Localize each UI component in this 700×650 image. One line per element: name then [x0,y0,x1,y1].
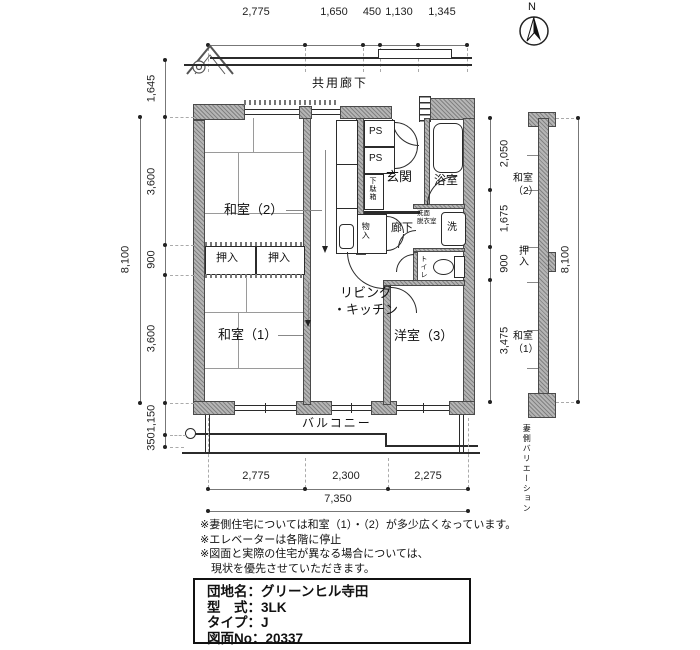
door-arc [395,146,418,169]
balcony-divider [205,415,206,452]
variation-room-washitsu2: 和室（2） [513,172,539,198]
toilet-icon [433,259,454,275]
tick-dot [576,116,580,120]
kitchen-counter [336,164,358,210]
note-line-1: ※妻側住宅については和室（1）・（2）が多少広くなっています。 [200,518,516,533]
tick-dot [163,243,167,247]
tatami-line [205,368,303,369]
dim-bottom-2: 2,300 [316,470,376,483]
dim-variation-3: 900 [499,242,512,286]
tick-dot [386,487,390,491]
info-drawing-no: 図面No：20337 [207,631,469,647]
tick-dot [361,43,365,47]
extension-line [170,447,184,448]
room-label-living-2: ・キッチン [333,303,398,318]
variation-tick [527,155,538,156]
info-type: 型 式：3LK [207,600,469,616]
extension-line [556,402,574,403]
tick-dot [163,433,167,437]
balcony-rail [386,445,478,447]
tick-dot [138,115,142,119]
room-label-living-1: リビング [340,286,392,301]
tick-dot [488,245,492,249]
room-label-toire: トイレ [419,255,427,279]
dim-left-3: 900 [146,240,159,280]
room-label-oshiire-2: 押入 [268,252,290,265]
dim-left-1: 1,645 [146,69,159,109]
tick-dot [488,400,492,404]
extension-line [170,245,194,246]
room-label-oshiire-1: 押入 [216,252,238,265]
kitchen-sink-icon [339,224,354,249]
living-door-arc [347,252,384,289]
wall-top-right-pillar [430,98,475,120]
room-label-genkan: 玄関 [386,170,412,185]
variation-room1-line1: 和室 [513,331,533,342]
variation-room2-line1: 和室 [513,173,533,184]
room-label-bath: 浴室 [434,174,458,188]
bathtub-icon [433,123,463,173]
wall-bottom-pillar [193,401,235,415]
variation-tick [527,282,538,283]
tick-dot [303,487,307,491]
wall-youshitsu-top [383,280,465,286]
extension-line [208,418,209,488]
dimension-line-bottom [208,489,468,490]
arrow-down-icon [305,320,311,327]
window-top-1 [245,109,299,115]
closet-hatch-bottom [205,274,303,278]
window-mullion [265,403,266,413]
info-danchi-name: 団地名：グリーンヒル寺田 [207,584,469,600]
dim-bottom-3: 2,275 [398,470,458,483]
toilet-tank-icon [454,256,465,278]
tatami-line [205,312,303,313]
dim-bottom-1: 2,775 [226,470,286,483]
tick-dot [416,43,420,47]
tick-dot [465,43,469,47]
dim-bottom-overall: 7,350 [308,493,368,506]
room-label-youshitsu3: 洋室（3） [394,329,453,344]
variation-room1-line2: （1） [513,344,539,355]
extension-line [305,48,306,72]
tick-dot [206,509,210,513]
balcony-divider [459,415,460,452]
dim-variation-1: 2,050 [499,132,512,176]
tick-dot [466,509,470,513]
variation-tick [527,247,538,248]
variation-tick [527,368,538,369]
extension-line [170,435,186,436]
dimension-line-bottom-overall [208,511,468,512]
extension-line [305,458,306,488]
window-top-2 [312,109,340,115]
balcony-outer-line [182,452,480,454]
room-label-sen: 洗 [447,222,457,234]
tick-dot [303,43,307,47]
arrow-down-icon [322,246,328,253]
tick-dot [163,58,167,62]
corridor-label: 共用廊下 [312,77,368,91]
room-label-rouka: 廊下 [391,222,413,235]
balcony-divider [209,415,210,452]
tick-dot [488,188,492,192]
room-label-getabako: 下駄箱 [368,177,376,201]
extension-line [388,458,389,488]
compass-icon [517,14,551,48]
variation-room-washitsu1: 和室（1） [513,330,539,356]
senmen-line2: 脱衣室 [417,218,437,225]
tick-dot [163,401,167,405]
room-label-monoire: 物入 [361,222,370,240]
dimension-line-top [208,45,467,46]
dim-left-4: 3,600 [146,319,159,359]
variation-caption: 妻側バリエーション [522,424,531,514]
wall-top-mid [340,106,392,119]
extension-line [468,418,469,488]
tick-dot [488,116,492,120]
corridor-edge-line [184,64,472,66]
dim-variation-2: 1,675 [499,197,512,241]
extension-line [363,48,364,72]
senmen-line1: 洗面 [417,210,430,217]
balcony-label: バルコニー [302,417,372,431]
kitchen-counter [336,120,358,166]
tick-dot [163,115,167,119]
wall-bottom-pillar [449,401,475,415]
wall-top-left-pillar [193,104,245,120]
tick-dot [466,487,470,491]
wall-senmen-toilet [413,248,465,252]
compass-north-label: N [528,1,536,14]
dim-left-6: 350 [146,422,159,462]
extension-line [170,403,194,404]
info-plan-type: タイプ：J [207,615,469,631]
tatami-line [246,277,247,312]
tick-dot [576,400,580,404]
wall-bottom-pillar [296,401,332,415]
drain-icon [185,428,196,439]
tatami-line [253,118,254,152]
corridor-slab [378,49,452,59]
dim-variation-overall: 8,100 [560,238,573,282]
variation-room2-line2: （2） [513,186,539,197]
room-label-washitsu2: 和室（2） [224,203,283,218]
notes-block: ※妻側住宅については和室（1）・（2）が多少広くなっています。 ※エレベーターは… [200,518,516,576]
dimension-line-variation-overall [578,118,579,402]
leader-line [286,210,322,211]
window-mullion [351,403,352,413]
room-label-ps1: PS [369,126,382,138]
tick-dot [138,401,142,405]
dimension-line-left-overall [140,117,141,403]
dim-top-1: 2,775 [226,6,286,19]
extension-line [170,275,194,276]
dim-variation-4: 3,475 [499,319,512,363]
balcony-rail [190,433,386,435]
tick-dot [206,487,210,491]
window-hatch [244,100,336,105]
tick-dot [163,445,167,449]
balcony-divider [463,415,464,452]
dim-left-2: 3,600 [146,162,159,202]
tick-dot [163,273,167,277]
room-label-senmen: 洗面脱衣室 [417,210,437,226]
leader-line [278,335,303,336]
note-line-2: ※エレベーターは各階に停止 [200,533,516,548]
window-mullion [423,403,424,413]
wall-left [193,120,205,415]
toilet-door-arc [396,254,414,272]
room-label-ps2: PS [369,153,382,165]
variation-wall-bottom-block [528,393,556,418]
title-block: 団地名：グリーンヒル寺田 型 式：3LK タイプ：J 図面No：20337 [193,578,471,644]
dim-top-5: 1,345 [412,6,472,19]
dim-left-overall: 8,100 [120,238,133,282]
tick-dot [378,43,382,47]
extension-line [170,117,194,118]
room-label-washitsu1: 和室（1） [218,328,277,343]
floorplan-page: 2,775 1,650 450 1,130 1,345 N 共用廊下 [0,0,700,650]
extension-line [556,118,574,119]
slide-door-marker [325,150,326,246]
tatami-line [205,152,303,153]
extension-line [467,48,468,72]
note-line-3: ※図面と実際の住宅が異なる場合については、 [200,547,516,562]
note-line-4: 現状を優先させていただきます。 [200,562,516,577]
tick-dot [488,278,492,282]
variation-wall-bump [548,252,556,272]
variation-room-oshiire: 押入 [516,245,528,267]
slide-door-marker [308,282,309,320]
dimension-line-variation [490,118,491,402]
